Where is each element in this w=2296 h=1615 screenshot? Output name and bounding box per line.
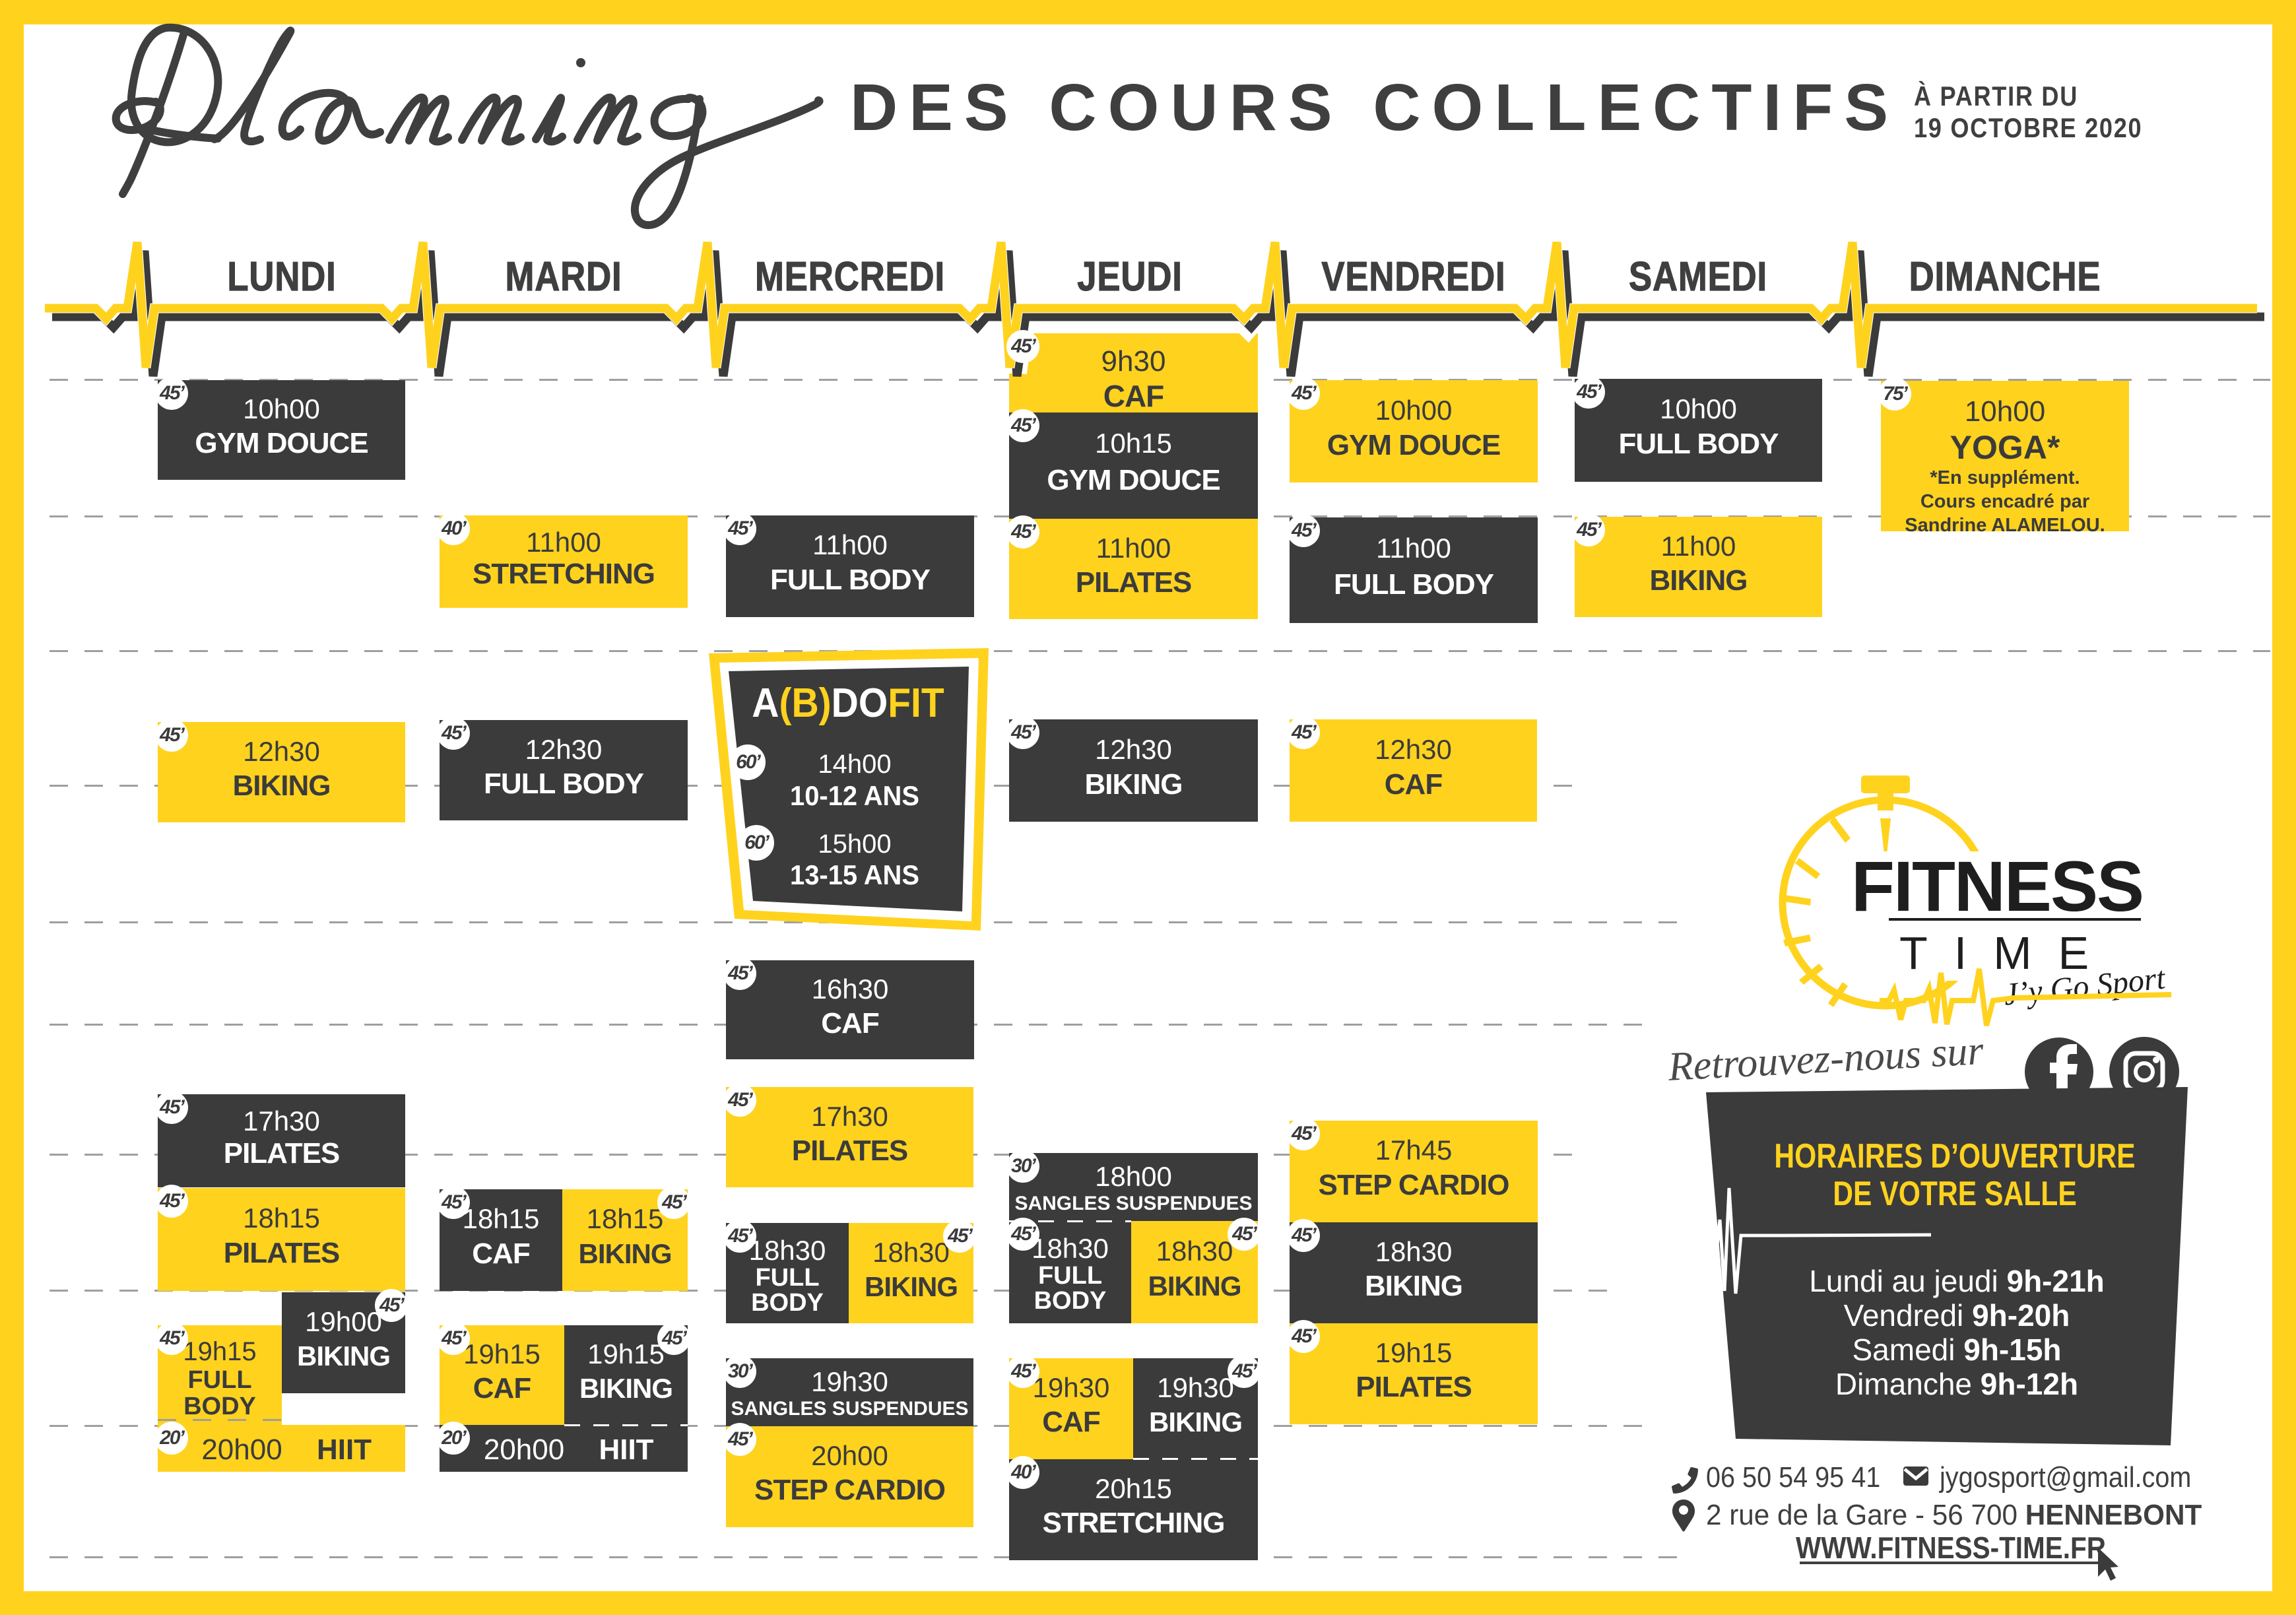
svg-text:FITNESS: FITNESS: [1851, 846, 2143, 926]
